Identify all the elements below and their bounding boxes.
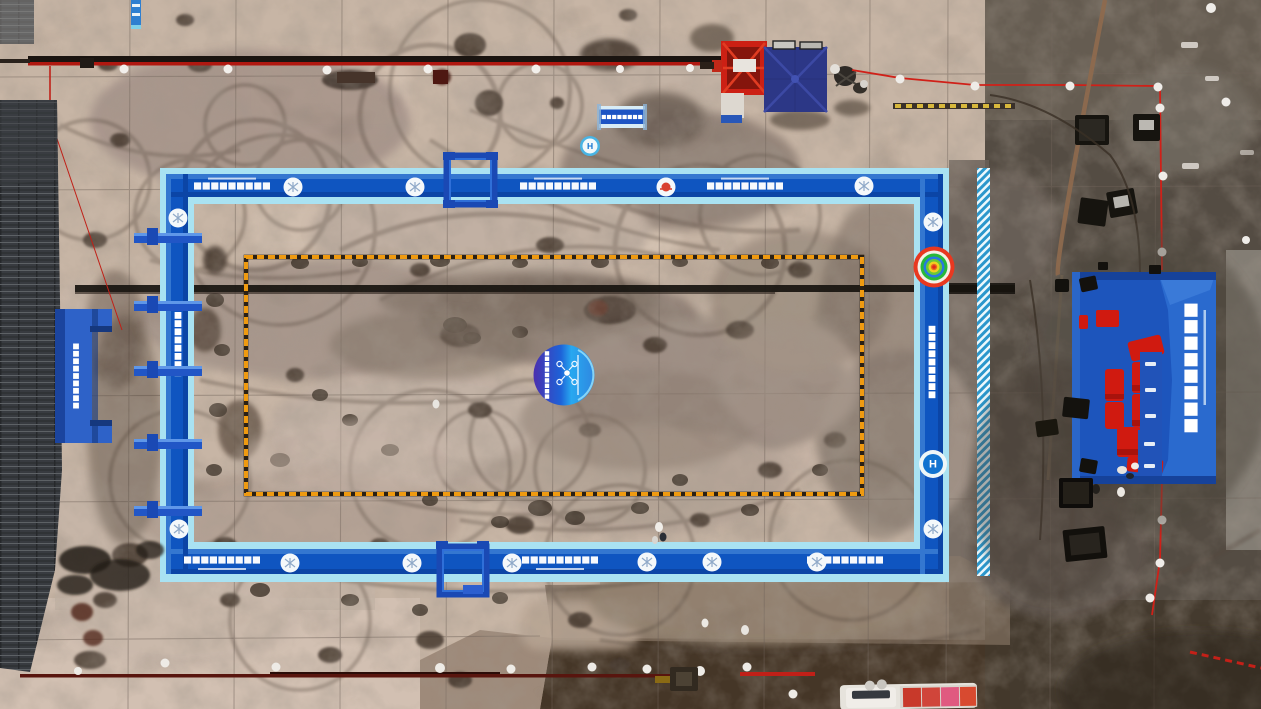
svg-text:H: H (587, 141, 593, 151)
svg-text:H: H (929, 459, 937, 471)
